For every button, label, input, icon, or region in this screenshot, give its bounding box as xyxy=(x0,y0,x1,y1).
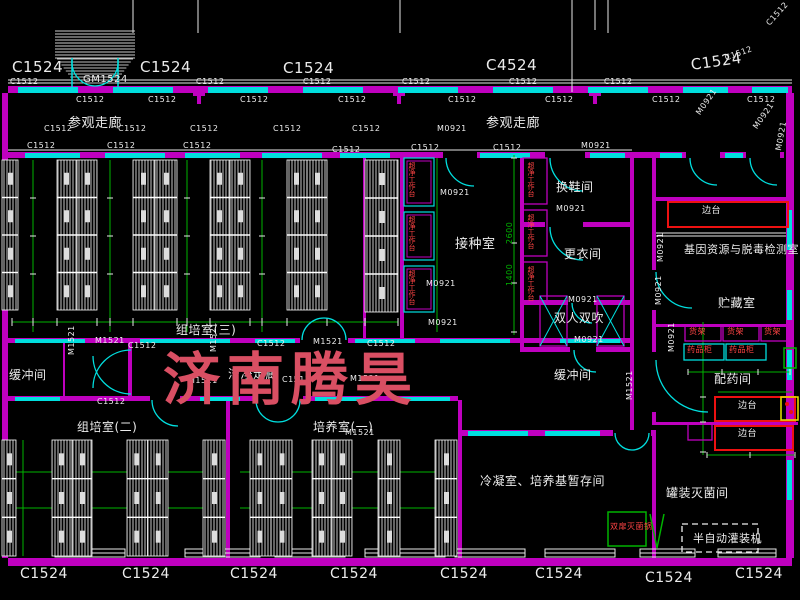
equipment-layer xyxy=(404,158,798,552)
stairs xyxy=(55,31,135,88)
floorplan-drawing xyxy=(0,0,800,600)
cad-viewport[interactable]: C1524C1524C1524C4524C1524C1512C1512GM152… xyxy=(0,0,800,600)
watermark-text: 济南腾昊 xyxy=(163,334,419,416)
